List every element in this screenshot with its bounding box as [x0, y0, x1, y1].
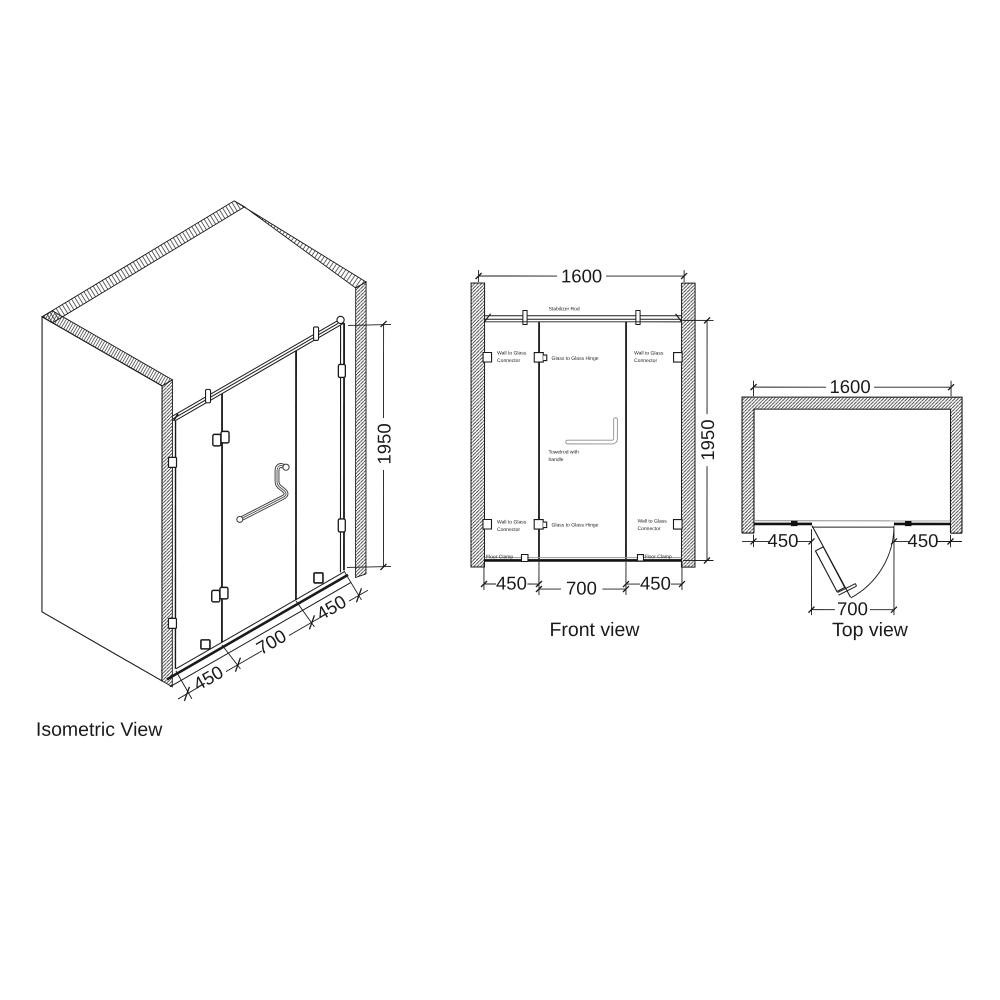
svg-text:Connector: Connector — [637, 526, 660, 532]
svg-text:1950: 1950 — [374, 423, 395, 464]
svg-text:450: 450 — [908, 530, 939, 551]
svg-text:Front view: Front view — [549, 619, 640, 641]
svg-text:Floor Clamp: Floor Clamp — [486, 554, 513, 560]
svg-text:Isometric View: Isometric View — [36, 719, 163, 741]
svg-text:Floor Clamp: Floor Clamp — [644, 554, 671, 560]
svg-text:Wall to Glass: Wall to Glass — [497, 519, 527, 525]
svg-text:Connector: Connector — [497, 358, 520, 364]
svg-text:450: 450 — [496, 572, 527, 593]
svg-text:Wall to Glass: Wall to Glass — [637, 519, 667, 525]
svg-text:450: 450 — [768, 530, 799, 551]
svg-text:Towelrod with: Towelrod with — [549, 450, 580, 456]
svg-text:Wall to Glass: Wall to Glass — [634, 351, 664, 357]
svg-text:Stabilizer Rod: Stabilizer Rod — [549, 306, 580, 312]
svg-text:Connector: Connector — [634, 358, 657, 364]
svg-text:1600: 1600 — [561, 265, 602, 286]
svg-text:Wall to Glass: Wall to Glass — [497, 350, 527, 356]
svg-text:700: 700 — [566, 578, 597, 599]
svg-text:Connector: Connector — [497, 527, 520, 533]
svg-text:450: 450 — [640, 573, 671, 594]
svg-text:handle: handle — [549, 457, 564, 463]
svg-text:Top view: Top view — [832, 619, 909, 641]
svg-text:Glass to Glass Hinge: Glass to Glass Hinge — [551, 523, 598, 529]
svg-text:1950: 1950 — [697, 420, 718, 461]
svg-text:Glass to Glass Hinge: Glass to Glass Hinge — [552, 356, 599, 362]
svg-text:700: 700 — [837, 598, 868, 619]
svg-text:1600: 1600 — [829, 376, 870, 397]
